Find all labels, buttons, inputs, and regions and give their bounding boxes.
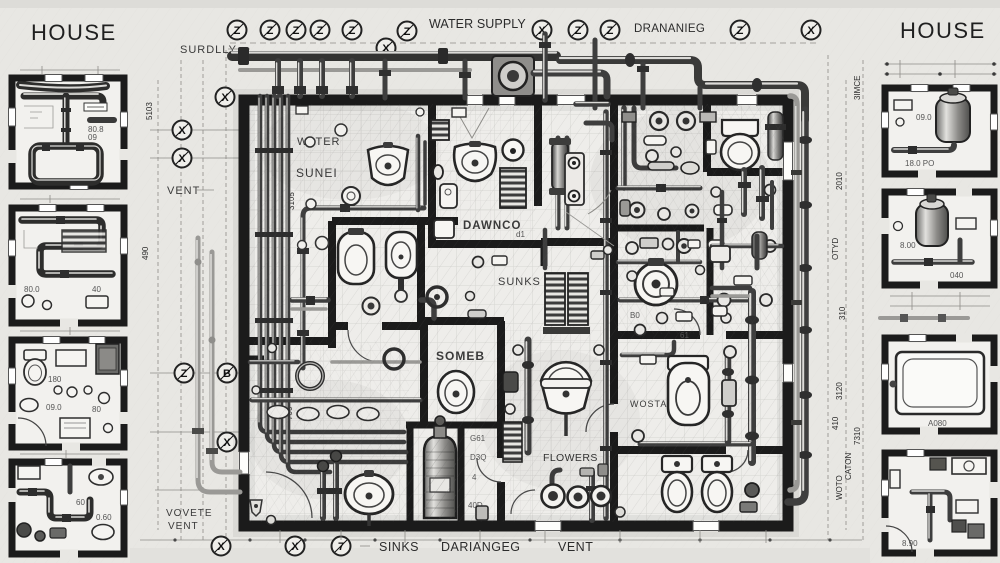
svg-text:VOVETE: VOVETE [166,508,213,519]
svg-text:WOTO: WOTO [835,475,844,500]
svg-text:2010: 2010 [835,172,844,190]
svg-text:80.0: 80.0 [24,285,40,294]
svg-text:80: 80 [92,405,101,414]
svg-text:410: 410 [831,416,840,430]
svg-text:VENT: VENT [167,185,200,197]
svg-text:040: 040 [950,271,964,280]
svg-text:09.0: 09.0 [916,113,932,122]
svg-text:7: 7 [338,541,344,553]
svg-text:3120: 3120 [835,382,844,400]
svg-text:0.60: 0.60 [96,513,112,522]
svg-text:61: 61 [680,331,689,340]
svg-text:8.00: 8.00 [900,241,916,250]
svg-text:60: 60 [76,498,85,507]
svg-text:5103: 5103 [145,102,154,120]
svg-text:DARIANGEG: DARIANGEG [441,540,521,554]
svg-text:8.90: 8.90 [902,539,918,548]
svg-text:HOUSE: HOUSE [31,20,117,45]
svg-text:HOUSE: HOUSE [900,18,986,43]
svg-text:d1: d1 [516,230,525,239]
svg-text:D3Q: D3Q [470,453,486,462]
svg-text:WATER SUPPLY: WATER SUPPLY [429,17,526,31]
svg-text:VENT: VENT [168,521,199,532]
svg-text:18.0 PO: 18.0 PO [905,159,934,168]
svg-text:7310: 7310 [853,427,862,445]
svg-text:DRANANIEG: DRANANIEG [634,23,705,35]
svg-text:VENT: VENT [558,540,593,554]
svg-text:180: 180 [48,375,62,384]
svg-text:4: 4 [472,473,477,482]
svg-text:40: 40 [92,285,101,294]
svg-text:B0: B0 [630,311,640,320]
svg-text:OTYD: OTYD [831,238,840,260]
svg-text:3IMCE: 3IMCE [853,76,862,100]
svg-text:CATON: CATON [844,453,853,480]
svg-text:G61: G61 [470,434,486,443]
svg-text:310: 310 [838,306,847,320]
svg-text:09: 09 [88,133,97,142]
svg-text:SINKS: SINKS [379,540,419,554]
svg-text:A080: A080 [928,419,947,428]
svg-text:09.0: 09.0 [46,403,62,412]
svg-text:490: 490 [141,246,150,260]
